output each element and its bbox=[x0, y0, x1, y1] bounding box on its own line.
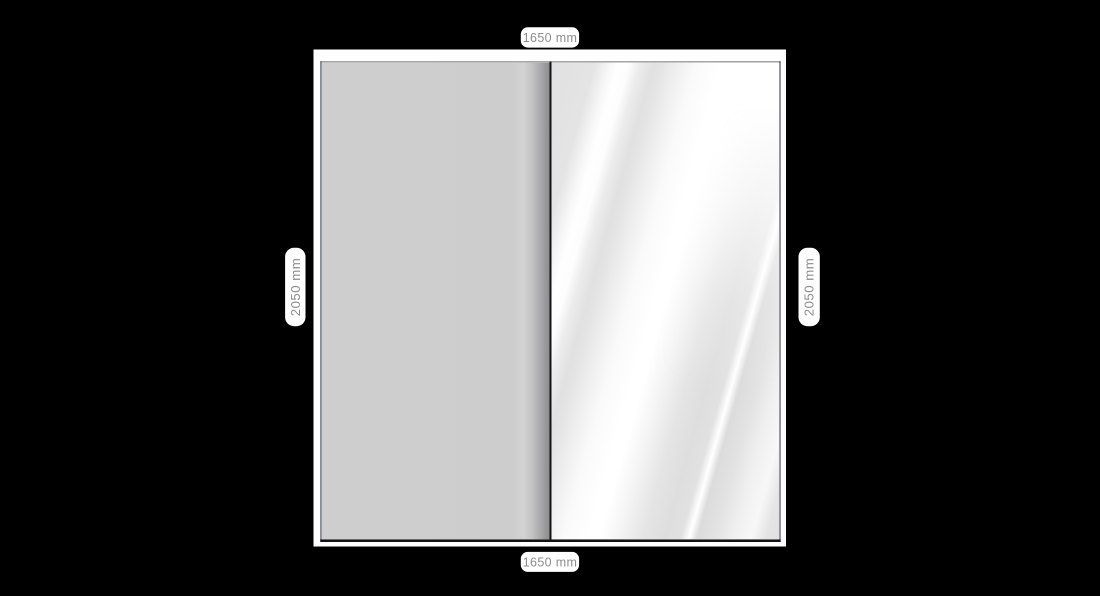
svg-text:1650 mm: 1650 mm bbox=[523, 555, 578, 569]
svg-text:2050 mm: 2050 mm bbox=[802, 258, 817, 316]
svg-text:2050 mm: 2050 mm bbox=[288, 258, 303, 316]
svg-text:1650 mm: 1650 mm bbox=[523, 31, 578, 45]
